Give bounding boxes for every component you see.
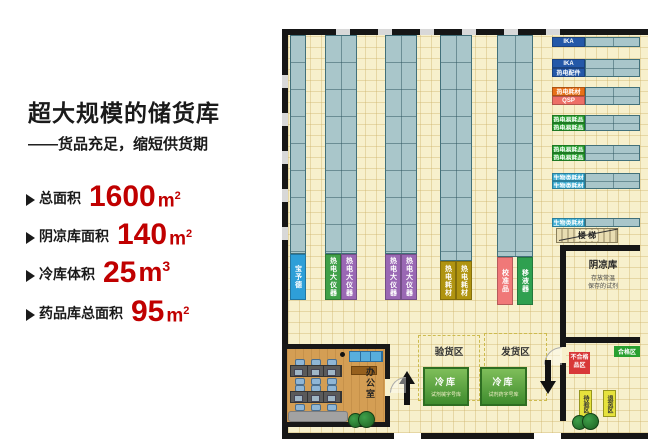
spec-unit: m2 (169, 228, 192, 250)
rack-label: IKA (552, 59, 585, 68)
shelf-rack-column (385, 35, 417, 254)
window-gap (282, 189, 288, 202)
office-desk (290, 365, 342, 377)
spec-value: 25 (103, 258, 136, 288)
unqualified-zone-tag: 不合格品区 (569, 352, 590, 374)
shelf-rack-column (440, 35, 472, 261)
spec-value: 140 (117, 220, 167, 250)
qualified-zone-tag: 合格区 (614, 346, 640, 357)
rack-label: 热电耗材 (552, 87, 585, 96)
bullet-arrow-icon (26, 194, 35, 206)
office-label: 办公室 (364, 367, 377, 415)
rack-label: 热电易耗品 (552, 123, 585, 131)
shelf-cells (585, 59, 640, 77)
shelf-cells (585, 87, 640, 105)
rack-label: 热电大仪器 (325, 254, 341, 300)
door-gap (385, 379, 390, 396)
exit-arrow-down (540, 360, 556, 394)
bullet-arrow-icon (26, 270, 35, 282)
rack-label: 热电易耗品 (552, 115, 585, 123)
spec-value: 1600 (89, 182, 156, 212)
rack-label: 热电大仪器 (401, 254, 417, 300)
rack-label: 热电耗材 (456, 261, 472, 300)
shipping-zone-label: 发货区 (485, 344, 546, 358)
rack-label: 热电大仪器 (341, 254, 357, 300)
window-gap (282, 151, 288, 164)
shelf-cells (585, 37, 640, 47)
spec-cold-volume: 冷库体积 25 m3 (26, 254, 170, 288)
shelf-rack-row: 热电易耗品 热电易耗品 (552, 115, 640, 131)
cold-storage-label: 冷库 (482, 375, 525, 388)
cold-storage-box: 冷库 试剂械字号库 (423, 367, 469, 406)
spec-cool-area: 阴凉库面积 140 m2 (26, 216, 192, 250)
rack-label: 生物类耗材 (552, 173, 585, 181)
cold-storage-sub: 试剂药字号库 (482, 391, 525, 398)
interior-wall (560, 245, 566, 421)
cool-room-label: 阴凉库 (566, 257, 640, 271)
rack-label: 移液器 (517, 257, 533, 305)
shelf-rack-row: IKA (552, 37, 640, 47)
rack-label: 生物类耗材 (552, 218, 585, 227)
spec-label: 药品库总面积 (39, 303, 123, 323)
interior-wall (560, 337, 640, 343)
rack-label: QSP (552, 96, 585, 105)
office-chair (311, 378, 321, 385)
rack-label: 热电易耗品 (552, 145, 585, 153)
shelf-cells (585, 115, 640, 131)
info-panel: 超大规模的储货库 ——货品充足，缩短供货期 总面积 1600 m2 阴凉库面积 … (0, 0, 282, 439)
shelf-rack-row: 热电耗材 QSP (552, 87, 640, 105)
office-clock (340, 352, 345, 357)
office-desk (290, 391, 342, 403)
rack-label: 热电易耗品 (552, 153, 585, 161)
cold-storage-label: 冷库 (425, 375, 467, 388)
door-gap (534, 433, 561, 439)
shelf-rack-row: 生物类耗材 生物类耗材 (552, 173, 640, 189)
office-chair (327, 378, 337, 385)
office-chair (311, 404, 321, 411)
bullet-arrow-icon (26, 232, 35, 244)
window-gap (282, 113, 288, 126)
spec-medicine-area: 药品库总面积 95 m2 (26, 293, 189, 327)
warehouse-floorplan: 宝予德 热电大仪器 热电大仪器 热电大仪器 热电大仪器 热电耗材 热电耗材 校准… (282, 29, 648, 439)
rack-label: 校准品 (497, 257, 513, 305)
spec-total-area: 总面积 1600 m2 (26, 178, 181, 212)
spec-unit: m2 (166, 305, 189, 327)
spec-value: 95 (131, 297, 164, 327)
bush (348, 411, 374, 427)
door-gap (394, 433, 421, 439)
window-gap (546, 29, 560, 35)
shelf-cells (585, 145, 640, 161)
shelf-rack-row: 生物类耗材 (552, 218, 640, 227)
spec-label: 冷库体积 (39, 264, 95, 284)
rack-label: 生物类耗材 (552, 181, 585, 189)
office-cabinet (349, 351, 383, 362)
window-gap (282, 75, 288, 88)
shelf-rack-column (497, 35, 533, 257)
inspection-zone-label: 验货区 (419, 344, 479, 358)
door-swing-arc (390, 377, 406, 393)
rack-label: IKA (552, 37, 585, 47)
bullet-arrow-icon (26, 309, 35, 321)
shelf-cells (585, 218, 640, 227)
window-gap (282, 227, 288, 240)
window-gap (420, 29, 434, 35)
cold-storage-box: 冷库 试剂药字号库 (480, 367, 527, 406)
returns-zone-tag: 退货区 (603, 390, 616, 417)
page-title: 超大规模的储货库 (28, 94, 220, 128)
spec-unit: m3 (138, 257, 170, 288)
office-chair (295, 404, 305, 411)
cool-room-desc: 保存的试剂 (566, 281, 640, 290)
shelf-cells (585, 173, 640, 189)
spec-unit: m2 (158, 190, 181, 212)
spec-label: 总面积 (39, 188, 81, 208)
rack-label: 宝予德 (290, 254, 306, 300)
page-subtitle: ——货品充足，缩短供货期 (28, 133, 208, 154)
shelf-rack-row: IKA 热电配件 (552, 59, 640, 77)
interior-wall (560, 245, 640, 251)
office-chair (295, 378, 305, 385)
bush (572, 413, 598, 429)
office-chair (327, 404, 337, 411)
shelf-rack-row: 热电易耗品 热电易耗品 (552, 145, 640, 161)
cold-storage-sub: 试剂械字号库 (425, 391, 467, 398)
rack-label: 热电大仪器 (385, 254, 401, 300)
shelf-rack-column (290, 35, 306, 254)
rack-label: 热电配件 (552, 68, 585, 77)
spec-label: 阴凉库面积 (39, 226, 109, 246)
office-mat (288, 411, 348, 422)
rack-label: 热电耗材 (440, 261, 456, 300)
stairs: 楼 梯 (556, 228, 618, 243)
shelf-rack-column (325, 35, 357, 254)
